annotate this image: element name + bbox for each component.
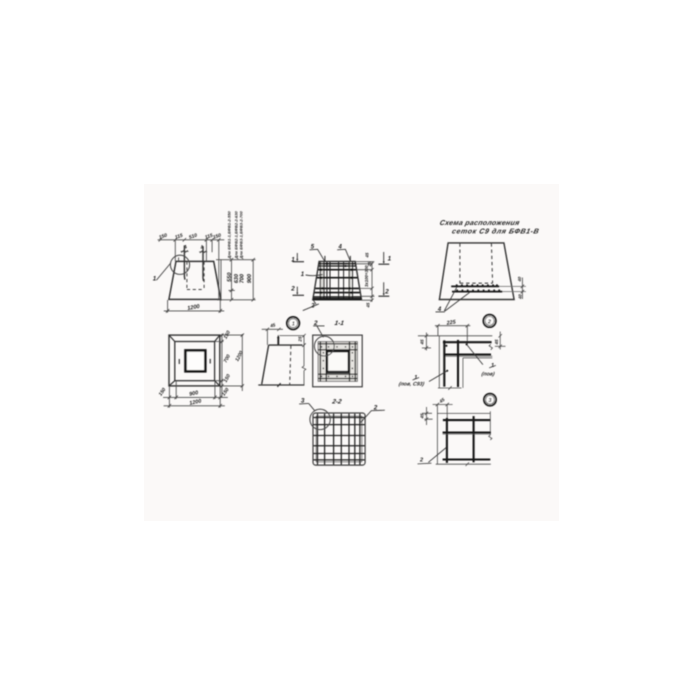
svg-text:2: 2 xyxy=(384,289,389,296)
svg-text:45: 45 xyxy=(420,339,425,346)
svg-text:1: 1 xyxy=(291,257,295,264)
svg-text:Для БФВ3-1,БФВ3-2-700: Для БФВ3-1,БФВ3-2-700 xyxy=(239,210,244,259)
svg-text:Для БФВ1-1,БФВ1-2-550: Для БФВ1-1,БФВ1-2-550 xyxy=(227,210,232,259)
svg-text:900: 900 xyxy=(247,273,253,283)
svg-text:550: 550 xyxy=(227,272,233,282)
svg-text:2-2: 2-2 xyxy=(331,399,343,406)
svg-text:45: 45 xyxy=(365,302,370,308)
svg-text:(пов, С93): (пов, С93) xyxy=(398,381,425,387)
svg-text:сеток С9 для БФВ1-В: сеток С9 для БФВ1-В xyxy=(451,227,540,236)
svg-text:40: 40 xyxy=(517,276,522,282)
svg-text:45: 45 xyxy=(364,252,369,258)
svg-text:1: 1 xyxy=(292,322,295,328)
svg-text:1-1: 1-1 xyxy=(334,320,345,327)
svg-text:(пов): (пов) xyxy=(481,372,495,378)
svg-text:40: 40 xyxy=(517,294,522,300)
svg-text:45: 45 xyxy=(419,413,424,420)
svg-text:Для БФВ2-1,БФВ2-2-630: Для БФВ2-1,БФВ2-2-630 xyxy=(233,210,238,259)
svg-text:45: 45 xyxy=(494,339,499,346)
svg-text:1: 1 xyxy=(388,255,392,262)
svg-text:700: 700 xyxy=(240,273,246,283)
svg-text:25: 25 xyxy=(298,336,303,343)
svg-text:3х100=300: 3х100=300 xyxy=(364,265,369,287)
svg-text:1: 1 xyxy=(153,276,157,283)
svg-text:2: 2 xyxy=(290,285,295,292)
svg-text:Схема расположения: Схема расположения xyxy=(439,218,521,227)
